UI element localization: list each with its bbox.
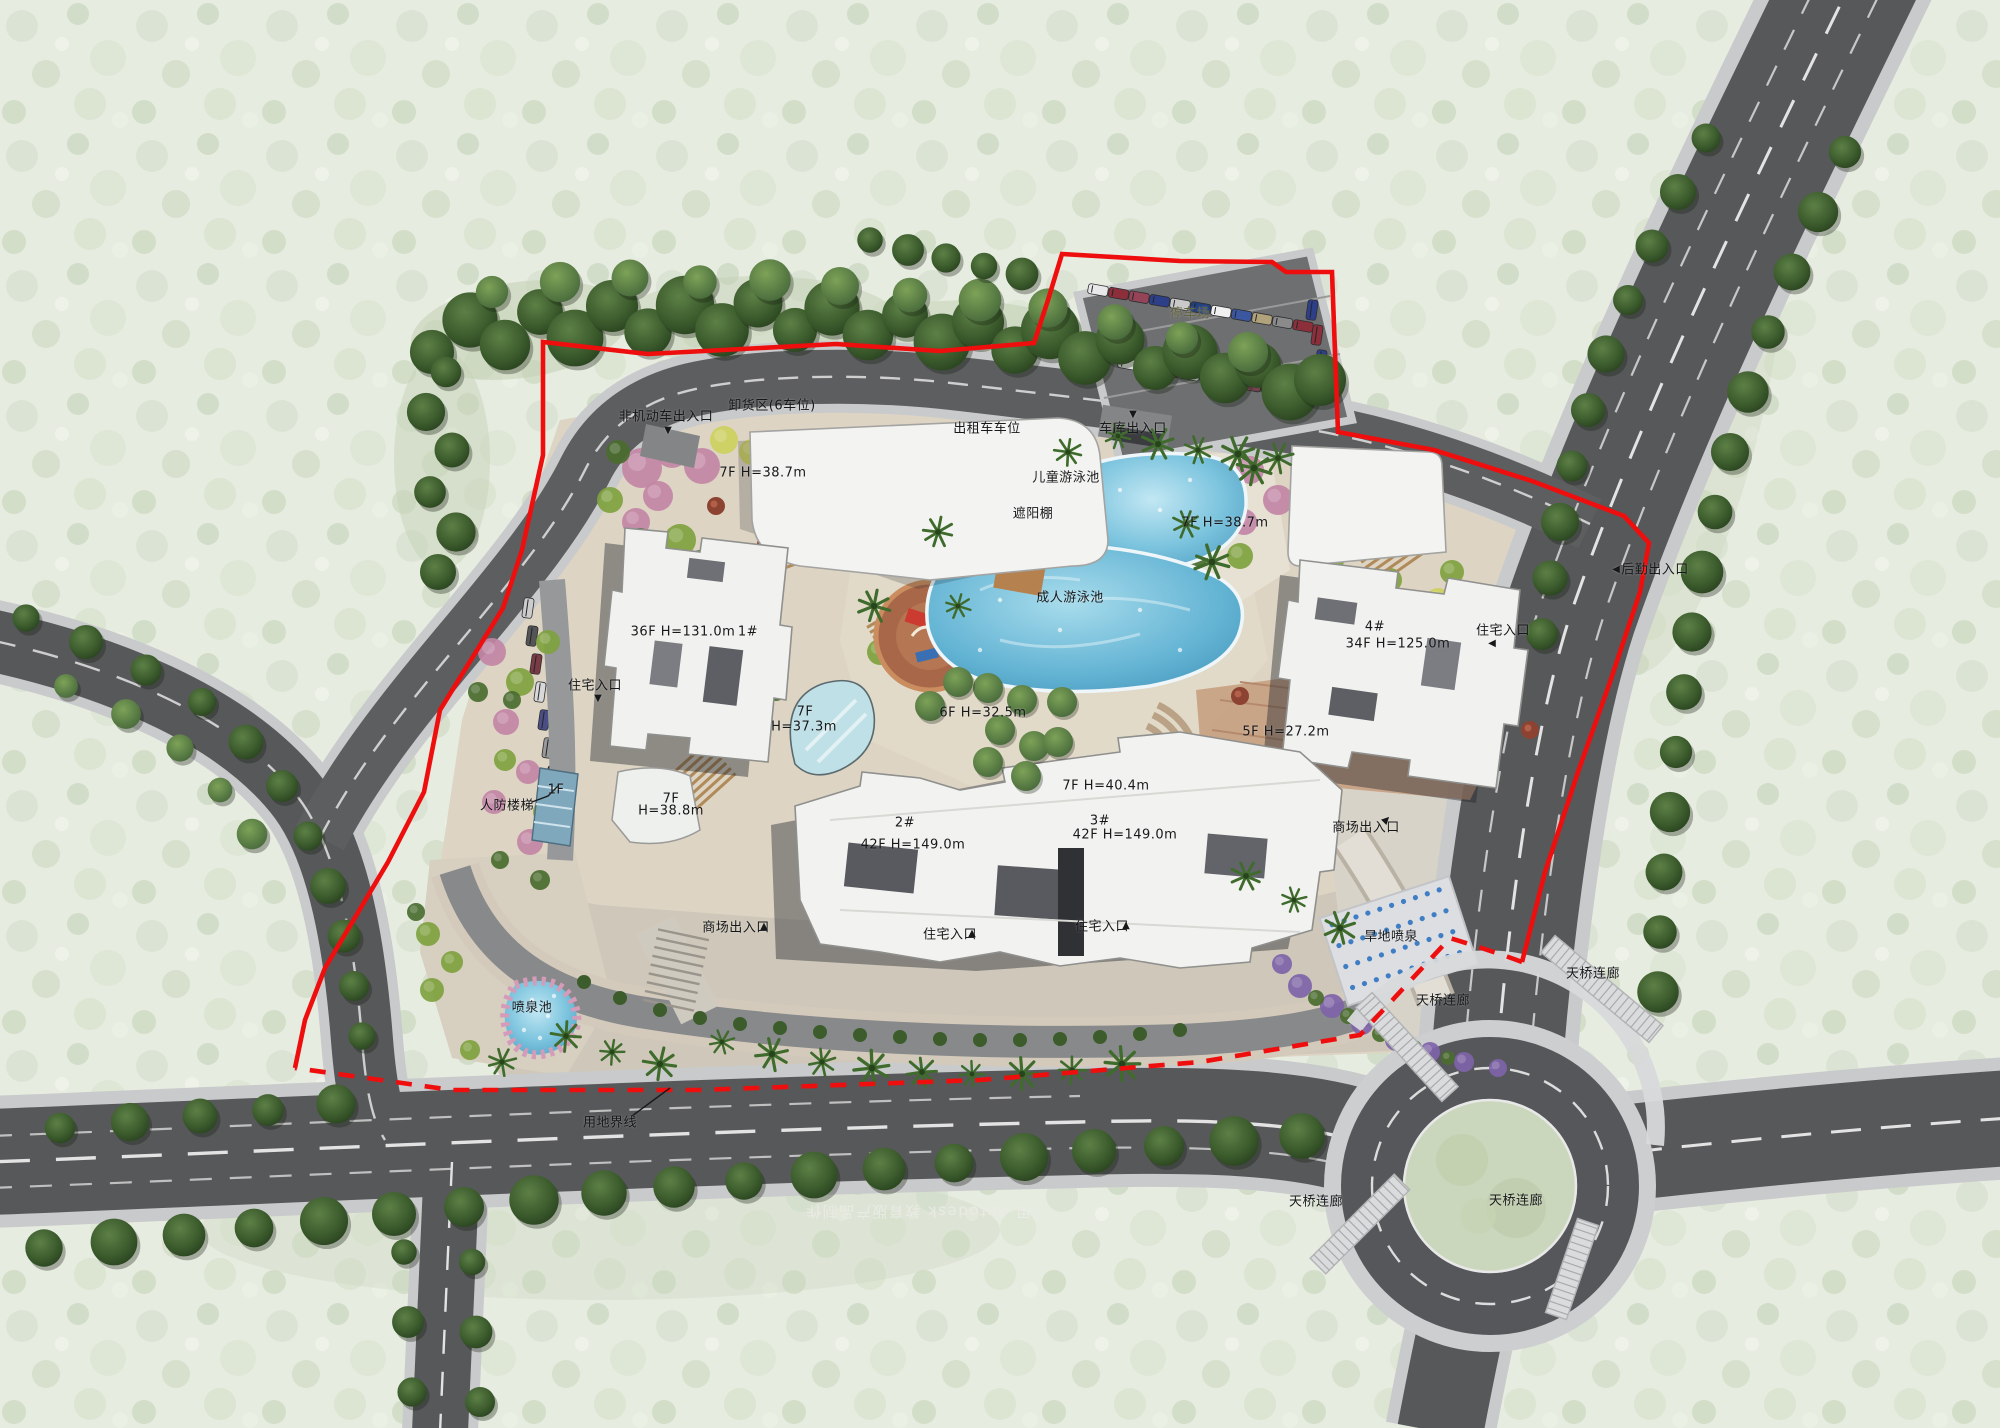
tower-4-building <box>1278 560 1528 788</box>
right-podium-roof <box>1288 446 1446 566</box>
left-podium-building <box>612 768 700 844</box>
site-plan-stage: 非机动车出入口▼卸货区(6车位)出租车车位▼车库出入口停车场7F H=38.7m… <box>0 0 2000 1428</box>
autodesk-watermark: 用 Autodesk 教育版产品制作 <box>805 1202 1032 1223</box>
top-center-podium-roof <box>750 418 1108 580</box>
